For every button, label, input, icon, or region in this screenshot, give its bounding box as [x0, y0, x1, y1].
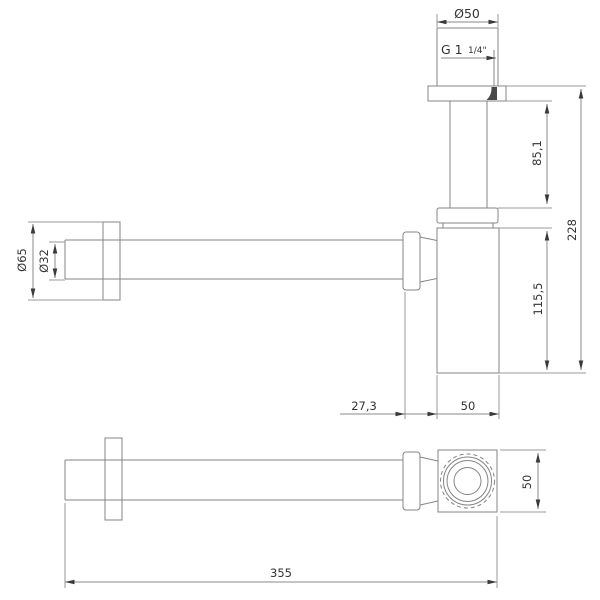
wall-rosette-plan [105, 438, 122, 520]
pipe-nut-plan [403, 452, 420, 510]
plan-view [65, 438, 497, 520]
body-nut-step [443, 223, 493, 228]
pipe-nut [403, 232, 420, 290]
wall-pipe [65, 240, 403, 279]
dim-label-overall-height: 228 [565, 219, 579, 241]
dim-label-body-height: 115,5 [531, 283, 545, 316]
side-view [65, 28, 506, 373]
pipe-taper [420, 237, 437, 282]
inlet-tube [437, 28, 498, 86]
technical-drawing-canvas: Ø50 G 1 1/4" 85,1 228 115,5 Ø65 Ø32 27,3… [0, 0, 600, 600]
thread-fraction-label: 1/4" [468, 46, 487, 56]
thread-label: G 1 [441, 42, 463, 57]
body-nut [437, 208, 498, 223]
dim-label-inlet-tube-length: 85,1 [530, 140, 544, 166]
dim-label-inlet-offset: 27,3 [351, 399, 377, 413]
dim-label-top-diameter: Ø50 [454, 6, 480, 21]
dim-label-body-depth: 50 [520, 475, 534, 490]
dim-label-wall-pipe-diameter: Ø32 [37, 249, 51, 273]
wall-rosette [103, 222, 120, 300]
wall-pipe-plan [65, 460, 403, 500]
tailpipe [450, 101, 487, 208]
dim-label-body-width: 50 [461, 399, 476, 413]
dim-label-overall-length: 355 [270, 566, 292, 580]
pipe-taper-plan [420, 457, 438, 505]
trap-body [437, 228, 499, 373]
dim-label-wall-flange-diameter: Ø65 [15, 248, 29, 272]
drawing-page: Ø50 G 1 1/4" 85,1 228 115,5 Ø65 Ø32 27,3… [0, 0, 600, 600]
